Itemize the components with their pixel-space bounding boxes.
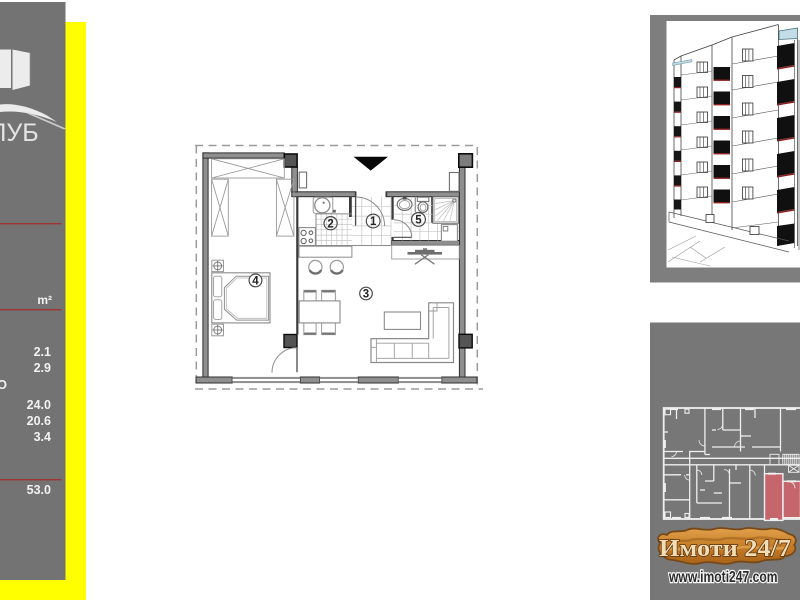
svg-text:5: 5	[415, 215, 422, 227]
svg-text:3: 3	[363, 289, 369, 301]
svg-text:www.imoti247.com: www.imoti247.com	[668, 569, 777, 586]
svg-text:53.0: 53.0	[27, 483, 51, 497]
svg-text:2.1: 2.1	[34, 345, 51, 359]
svg-text:2: 2	[327, 218, 333, 230]
svg-text:О: О	[0, 378, 7, 392]
svg-text:20.6: 20.6	[27, 414, 51, 428]
svg-text:Имоти 24/7: Имоти 24/7	[659, 535, 791, 562]
svg-text:2.9: 2.9	[34, 361, 51, 375]
svg-text:3.4: 3.4	[34, 430, 51, 444]
svg-text:4: 4	[252, 276, 259, 288]
svg-text:1: 1	[370, 216, 377, 228]
svg-text:m²: m²	[37, 293, 52, 307]
svg-text:ЛУБ: ЛУБ	[0, 119, 39, 147]
svg-text:24.0: 24.0	[27, 398, 51, 412]
